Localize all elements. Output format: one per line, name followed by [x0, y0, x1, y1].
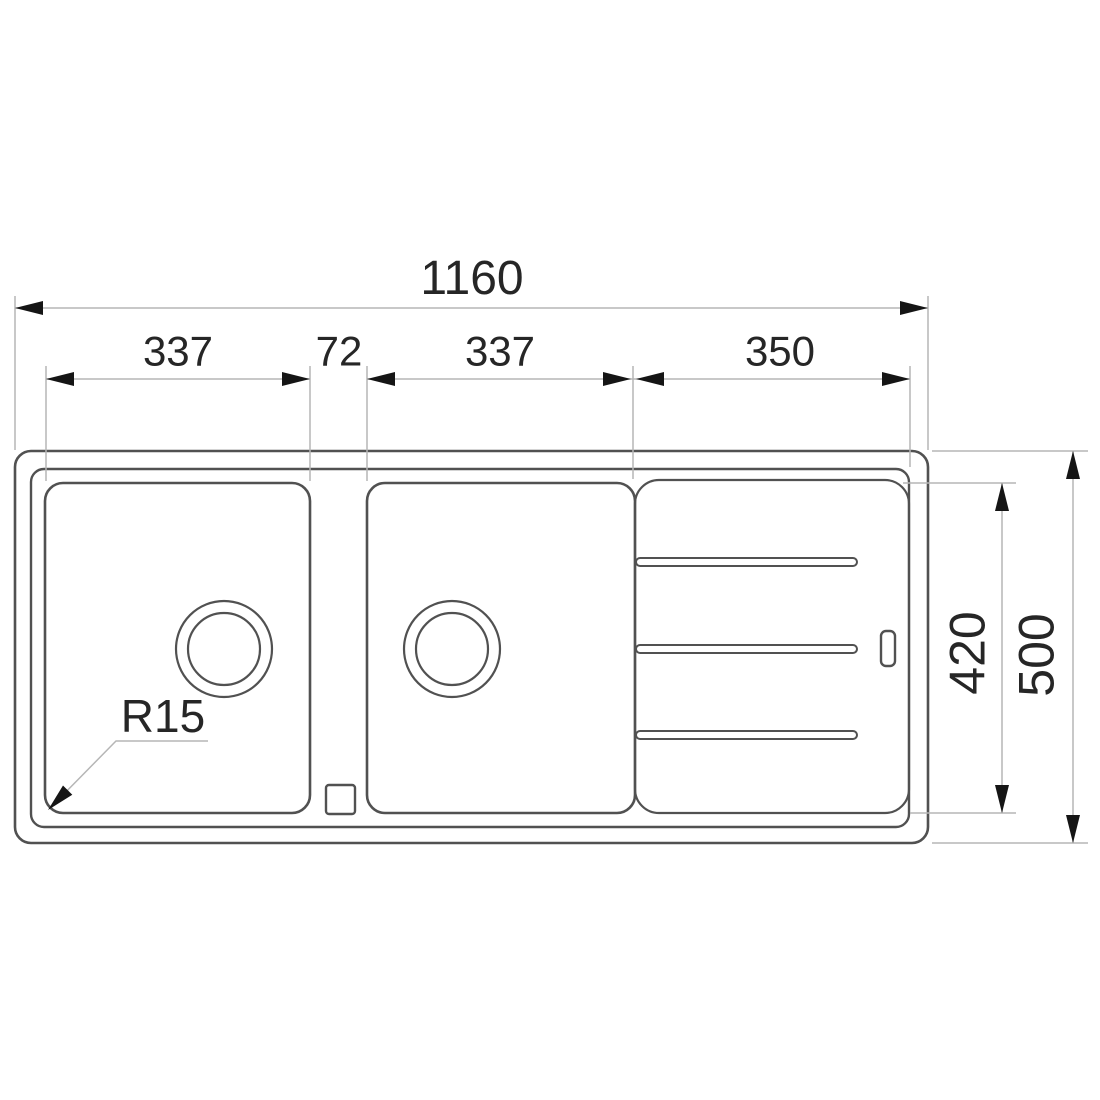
sink-technical-drawing-page: 1160 337 72 337 350 420 500 R15	[0, 0, 1100, 1100]
drainer-panel	[635, 480, 909, 813]
label-drainer-width: 350	[745, 328, 815, 375]
arrow-337b-left	[367, 372, 395, 386]
arrow-1160-right	[900, 301, 928, 315]
arrow-500-bottom	[1066, 815, 1080, 843]
drainer-groove-2	[636, 645, 857, 653]
sink-dimension-diagram: 1160 337 72 337 350 420 500 R15	[0, 0, 1100, 1100]
left-drain-inner-circle	[188, 613, 260, 685]
sink-outer-edge	[15, 451, 928, 843]
label-bowl-depth: 420	[940, 611, 996, 694]
drainer-groove-3	[636, 731, 857, 739]
left-bowl	[45, 483, 310, 813]
center-drain-outer-circle	[404, 601, 500, 697]
label-overall-width: 1160	[420, 252, 523, 305]
drainer-groove-1	[636, 558, 857, 566]
dimension-label-group: 1160 337 72 337 350 420 500 R15	[121, 252, 1065, 742]
divider-accessory-hole	[326, 785, 355, 814]
sink-outline-group	[15, 451, 928, 843]
arrow-420-top	[995, 483, 1009, 511]
sink-inner-rim	[31, 469, 909, 827]
arrow-1160-left	[15, 301, 43, 315]
arrow-420-bottom	[995, 785, 1009, 813]
overflow-slot	[881, 631, 895, 666]
arrow-337b-right	[603, 372, 631, 386]
label-left-bowl-width: 337	[143, 328, 213, 375]
left-drain-outer-circle	[176, 601, 272, 697]
label-overall-depth: 500	[1009, 613, 1065, 696]
arrow-350-right	[882, 372, 910, 386]
arrow-350-left	[636, 372, 664, 386]
label-center-bowl-width: 337	[465, 328, 535, 375]
arrow-500-top	[1066, 451, 1080, 479]
label-divider-width: 72	[316, 328, 363, 375]
arrow-337a-left	[46, 372, 74, 386]
label-corner-radius: R15	[121, 690, 205, 742]
arrow-337a-right	[282, 372, 310, 386]
center-drain-inner-circle	[416, 613, 488, 685]
arrowhead-group	[15, 301, 1080, 843]
radius-leader-line	[55, 741, 208, 803]
